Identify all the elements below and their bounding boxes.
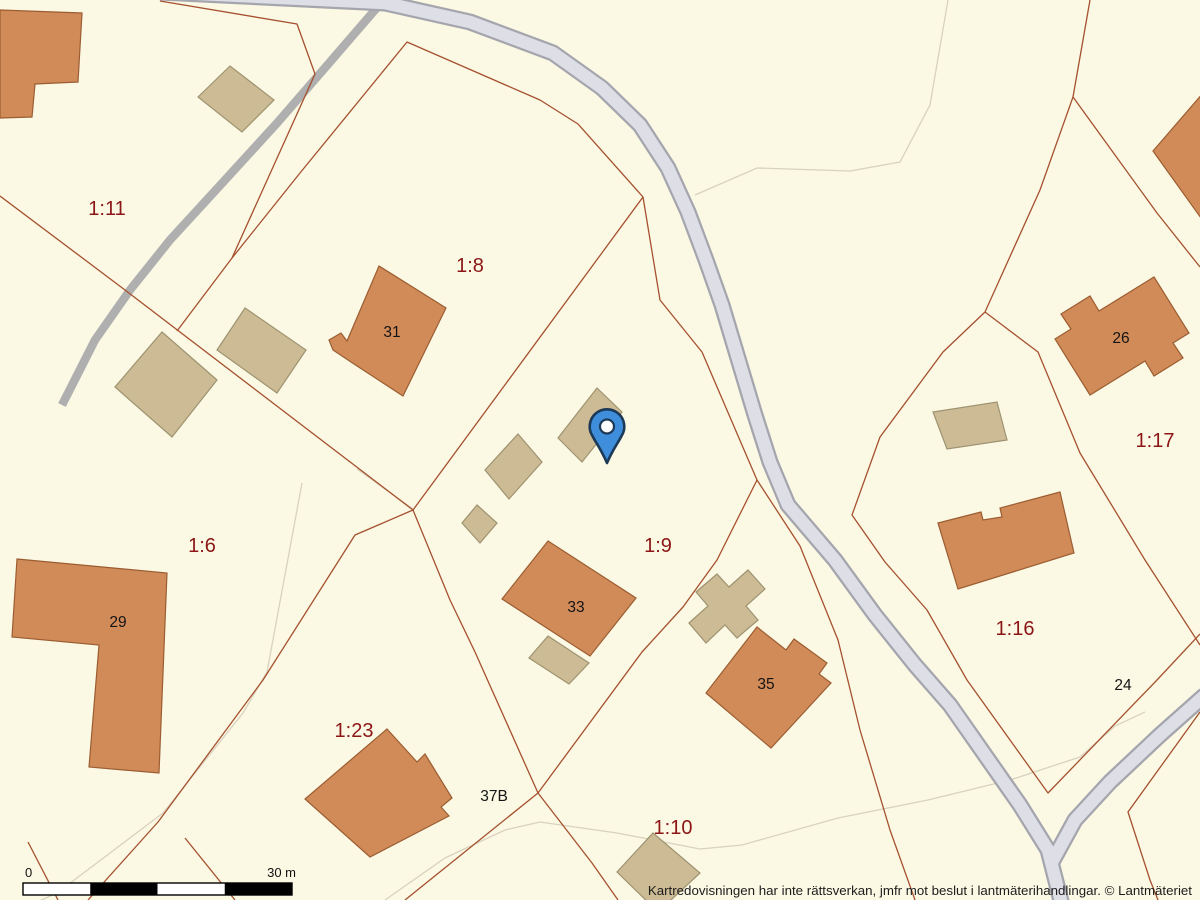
scale-bar-segment — [90, 883, 157, 895]
house-number-label: 33 — [567, 599, 584, 616]
house-number-label: 35 — [757, 676, 774, 693]
parcel-label: 1:10 — [654, 817, 693, 839]
map-canvas[interactable]: 1:111:81:61:91:171:161:231:1031293335262… — [0, 0, 1200, 900]
parcel-label: 1:16 — [996, 618, 1035, 640]
parcel-label: 1:6 — [188, 535, 216, 557]
scale-label-end: 30 m — [267, 865, 296, 880]
parcel-label: 1:9 — [644, 535, 672, 557]
scale-bar-segment — [225, 883, 292, 895]
parcel-label: 1:11 — [88, 198, 125, 220]
house-number-label: 24 — [1114, 677, 1132, 694]
location-pin-dot — [600, 420, 614, 434]
house-number-label: 26 — [1112, 330, 1129, 347]
parcel-label: 1:8 — [456, 255, 484, 277]
house-number-label: 31 — [383, 324, 400, 341]
house-number-label: 29 — [109, 614, 126, 631]
house-number-label: 37B — [480, 788, 508, 805]
parcel-label: 1:23 — [335, 720, 374, 742]
attribution: Kartredovisningen har inte rättsverkan, … — [648, 883, 1192, 898]
scale-label-start: 0 — [25, 865, 32, 880]
parcel-label: 1:17 — [1136, 430, 1175, 452]
map-viewport[interactable]: 1:111:81:61:91:171:161:231:1031293335262… — [0, 0, 1200, 900]
attribution-text: Kartredovisningen har inte rättsverkan, … — [648, 883, 1192, 898]
